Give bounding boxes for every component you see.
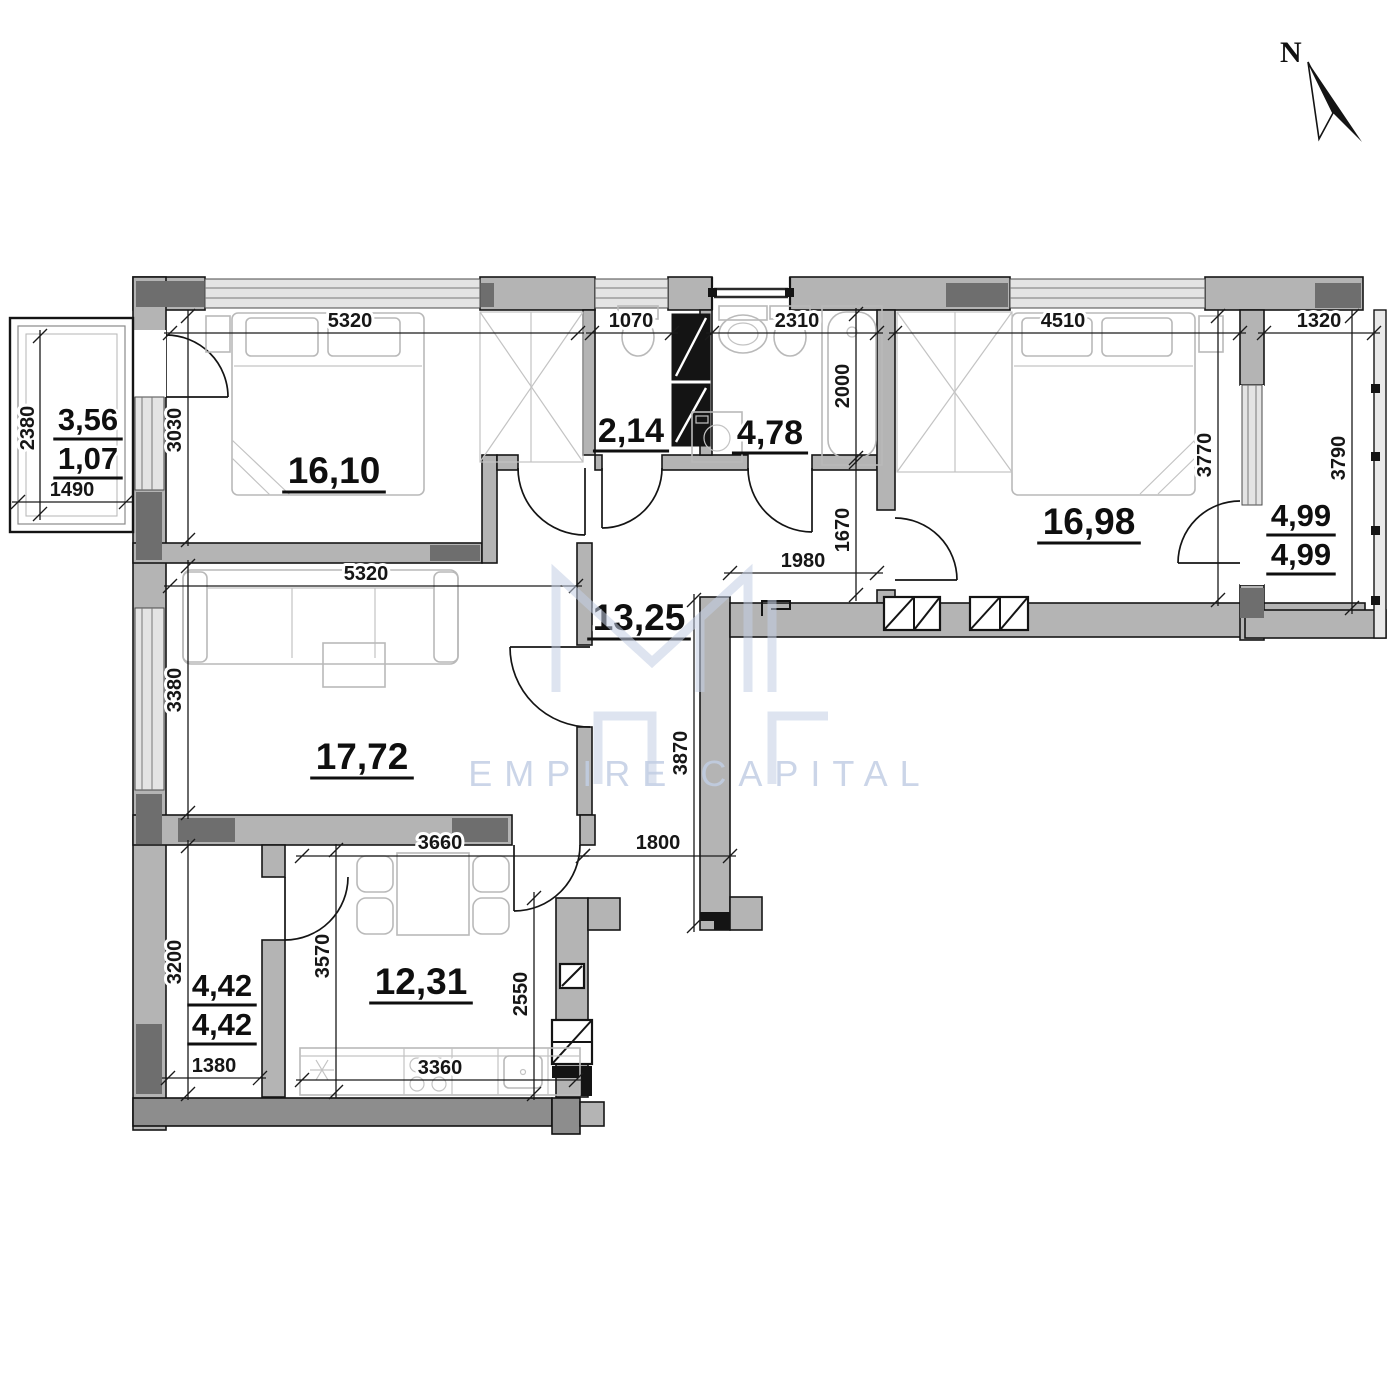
sink-icon — [504, 1056, 542, 1088]
bed-bedroom2 — [1012, 313, 1223, 495]
room-area-label-wc: 2,14 — [598, 412, 664, 450]
loggia-right-glazing — [1371, 310, 1386, 638]
dimension-label-kitchen_height: 3570 — [312, 934, 334, 979]
north-label: N — [1280, 36, 1302, 69]
dimension-label-hall_bottom_width: 1800 — [636, 832, 681, 854]
vent-hall-wall-2 — [970, 597, 1028, 630]
wardrobe-bedroom2 — [897, 312, 1012, 472]
window-bedroom1 — [205, 279, 480, 308]
room-area-label-loggia-left-reduced: 1,07 — [58, 441, 118, 476]
dimension-label-loggia_left_height: 2380 — [17, 406, 39, 451]
watermark-text: EMPIRE CAPITAL — [468, 753, 931, 794]
dimension-label-loggia_right_width: 1320 — [1297, 310, 1342, 332]
bathroom-sink — [719, 306, 767, 353]
dimension-label-kitchen_width: 3660 — [418, 832, 463, 854]
door-bedroom2 — [895, 518, 957, 580]
room-area-label-loggia-right-total: 4,99 — [1271, 498, 1331, 533]
room-area-label-loggia-bottom-total: 4,42 — [192, 968, 252, 1003]
door-loggia-bottom — [285, 877, 348, 940]
dimension-label-hall_niche_height: 1670 — [832, 508, 854, 553]
door-bedroom1 — [518, 468, 585, 535]
door-living — [510, 647, 590, 727]
door-wc — [602, 468, 662, 528]
room-area-label-loggia-right-reduced: 4,99 — [1271, 537, 1331, 572]
dimension-label-bedroom1_height: 3030 — [164, 408, 186, 453]
room-area-label-loggia-bottom-reduced: 4,42 — [192, 1007, 252, 1042]
window-balcony-left-wall — [133, 330, 166, 490]
dimension-label-kitchen_right_height: 2550 — [510, 972, 532, 1017]
dimension-label-wc_width: 1070 — [609, 310, 654, 332]
room-area-label-bathroom: 4,78 — [737, 414, 803, 452]
dimension-label-counter_width: 3360 — [418, 1057, 463, 1079]
wardrobe-bedroom1 — [480, 312, 583, 462]
dimension-label-loggia_left_width: 1490 — [50, 479, 95, 501]
coffee-table — [323, 643, 385, 687]
window-living — [135, 608, 164, 790]
dimension-label-loggia_right_height: 3790 — [1328, 436, 1350, 481]
sofa-living — [183, 570, 458, 664]
window-bedroom2 — [1010, 279, 1205, 308]
dimension-label-living_height: 3380 — [164, 668, 186, 713]
room-area-label-bedroom2: 16,98 — [1043, 501, 1136, 542]
dimension-label-bathroom_width: 2310 — [775, 310, 820, 332]
door-loggia-right — [1178, 501, 1240, 563]
dimension-label-bedroom1_width: 5320 — [328, 310, 373, 332]
door-bathroom — [748, 468, 812, 532]
window-loggia-right-partition — [1240, 385, 1264, 585]
dimension-label-bedroom2_height: 3770 — [1194, 433, 1216, 478]
room-area-label-kitchen: 12,31 — [375, 961, 468, 1002]
dimension-label-loggia_bottom_width: 1380 — [192, 1055, 237, 1077]
north-arrow: N — [1280, 36, 1362, 142]
vent-hall-wall-1 — [884, 597, 940, 630]
floor-plan-drawing: 5320107023104510132023801490303020001670… — [0, 0, 1400, 1400]
room-area-label-bedroom1: 16,10 — [288, 450, 381, 491]
dining-set — [357, 853, 509, 935]
dimension-label-loggia_bottom_height: 3200 — [164, 940, 186, 985]
dimension-label-bathtub_length: 2000 — [832, 364, 854, 409]
dimension-label-living_width: 5320 — [344, 563, 389, 585]
dimension-label-bedroom2_width: 4510 — [1041, 310, 1086, 332]
room-area-label-living: 17,72 — [316, 736, 409, 777]
room-area-label-loggia-left-total: 3,56 — [58, 402, 118, 437]
entrance-opening — [708, 277, 794, 310]
floor-plan-page: 5320107023104510132023801490303020001670… — [0, 0, 1400, 1400]
window-wc — [595, 279, 668, 308]
dimension-label-hall_width_top: 1980 — [781, 550, 826, 572]
